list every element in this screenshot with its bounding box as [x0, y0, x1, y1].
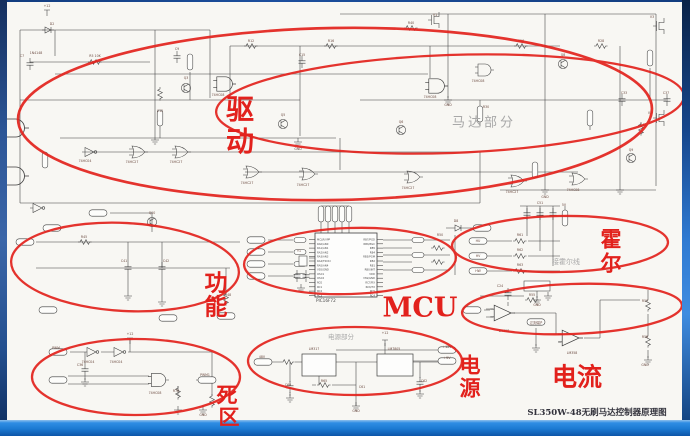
svg-text:RA1/AN1: RA1/AN1: [317, 246, 329, 250]
svg-text:RB1: RB1: [370, 263, 376, 267]
svg-text:74HC08: 74HC08: [424, 95, 437, 99]
svg-text:Q3: Q3: [184, 76, 189, 80]
svg-text:Q10: Q10: [149, 211, 156, 215]
svg-text:PWM1: PWM1: [200, 373, 210, 377]
svg-text:RC6/TX: RC6/TX: [366, 285, 376, 289]
svg-text:GND: GND: [533, 303, 541, 307]
drive-label-char1: 驱: [226, 96, 254, 124]
svg-text:C61: C61: [359, 385, 365, 389]
svg-text:Y1: Y1: [297, 249, 301, 253]
svg-text:VDD: VDD: [369, 272, 375, 276]
svg-text:GND: GND: [199, 413, 207, 417]
function-label-char1: 功: [205, 272, 228, 295]
hall-wiring-caption: 接霍尔线: [552, 257, 580, 267]
svg-text:V3: V3: [650, 15, 654, 19]
svg-text:74HC08: 74HC08: [472, 79, 485, 83]
svg-text:D8: D8: [454, 219, 458, 223]
svg-text:R50: R50: [437, 233, 443, 237]
svg-text:RC0: RC0: [317, 281, 322, 285]
svg-text:C7: C7: [20, 54, 24, 58]
svg-text:OSC1: OSC1: [317, 272, 324, 276]
frame-right-edge: [682, 0, 690, 436]
svg-text:74HC08: 74HC08: [567, 188, 580, 192]
svg-text:GND: GND: [641, 363, 649, 367]
svg-text:1N4148: 1N4148: [30, 51, 43, 55]
svg-text:PWM: PWM: [52, 346, 60, 350]
mcu-label: MCU: [383, 295, 458, 322]
svg-text:+12: +12: [44, 4, 51, 8]
svg-text:LM317: LM317: [309, 347, 320, 351]
svg-text:LM358: LM358: [567, 351, 578, 355]
svg-text:RB5: RB5: [370, 246, 376, 250]
slide: +12D21N4148C7R5 10KC9R12R16R40R26R28V1V3…: [0, 0, 690, 436]
svg-text:R55: R55: [529, 293, 535, 297]
svg-text:R70: R70: [173, 389, 179, 393]
svg-text:R58: R58: [642, 335, 648, 339]
svg-text:R63: R63: [517, 263, 523, 267]
svg-text:R45: R45: [81, 235, 87, 239]
svg-text:RC4: RC4: [370, 293, 375, 297]
svg-text:R57: R57: [642, 299, 648, 303]
svg-text:74HC27: 74HC27: [126, 160, 139, 164]
frame-top-edge: [0, 0, 690, 2]
svg-text:74HC27: 74HC27: [506, 190, 519, 194]
hall-label-char2: 尔: [601, 254, 622, 275]
svg-text:RC7/RX: RC7/RX: [365, 281, 375, 285]
svg-text:+12: +12: [382, 331, 389, 335]
svg-text:OSC2: OSC2: [317, 276, 324, 280]
svg-text:VSS/GND: VSS/GND: [363, 276, 375, 280]
function-label-char2: 能: [205, 296, 228, 319]
svg-text:Q5: Q5: [281, 113, 286, 117]
svg-text:RB7/PGD: RB7/PGD: [363, 238, 375, 242]
svg-text:RB6/PGC: RB6/PGC: [364, 242, 376, 246]
svg-text:R65: R65: [321, 379, 327, 383]
power-label-char2: 源: [460, 379, 481, 400]
svg-text:C36: C36: [77, 363, 83, 367]
svg-text:C51: C51: [537, 201, 543, 205]
svg-text:Q9: Q9: [629, 148, 634, 152]
svg-text:RA3/AN3: RA3/AN3: [317, 255, 329, 259]
svg-text:RB2: RB2: [370, 259, 376, 263]
svg-text:V1: V1: [433, 13, 437, 17]
svg-text:GND: GND: [352, 409, 360, 413]
motor-section-caption: 马达部分: [452, 112, 516, 131]
svg-text:C9: C9: [175, 47, 179, 51]
svg-text:R30: R30: [483, 105, 489, 109]
svg-text:RA5/AN4: RA5/AN4: [317, 263, 329, 267]
svg-text:74HC04: 74HC04: [110, 360, 123, 364]
svg-text:74HC27: 74HC27: [297, 183, 310, 187]
deadzone-label-char1: 死: [217, 386, 238, 407]
power-label-char1: 电: [460, 356, 481, 377]
svg-text:C42: C42: [163, 259, 169, 263]
svg-text:Q6: Q6: [399, 120, 404, 124]
svg-text:C62: C62: [421, 379, 427, 383]
svg-text:C12: C12: [157, 109, 163, 113]
svg-text:+5V: +5V: [444, 356, 452, 360]
svg-text:74HC08: 74HC08: [149, 391, 162, 395]
svg-text:74HC27: 74HC27: [170, 160, 183, 164]
svg-text:LM7805: LM7805: [388, 347, 401, 351]
svg-text:74HC27: 74HC27: [241, 181, 254, 185]
svg-text:HU: HU: [476, 239, 481, 243]
svg-text:R16: R16: [328, 39, 334, 43]
svg-text:74HC27: 74HC27: [402, 186, 415, 190]
svg-text:RC1: RC1: [317, 285, 322, 289]
frame-left-edge: [0, 0, 7, 436]
svg-text:74HC08: 74HC08: [212, 93, 225, 97]
svg-text:+12: +12: [127, 332, 134, 336]
svg-text:GND: GND: [541, 195, 549, 199]
svg-text:RA0/AN0: RA0/AN0: [317, 242, 329, 246]
svg-text:74HC04: 74HC04: [79, 159, 92, 163]
svg-text:C15: C15: [299, 53, 305, 57]
svg-text:C37: C37: [663, 91, 669, 95]
svg-text:R62: R62: [517, 248, 523, 252]
svg-text:C41: C41: [121, 259, 127, 263]
svg-text:R5 10K: R5 10K: [89, 54, 101, 58]
svg-text:RB3/PGM: RB3/PGM: [363, 255, 375, 259]
svg-text:RA2/AN2: RA2/AN2: [317, 250, 329, 254]
svg-text:48V: 48V: [259, 355, 266, 359]
svg-text:RB0/INT: RB0/INT: [365, 268, 376, 272]
svg-text:HW: HW: [475, 269, 481, 273]
svg-text:R61: R61: [517, 233, 523, 237]
power-section-caption: 电源部分: [328, 331, 354, 341]
svg-text:C24: C24: [497, 284, 503, 288]
svg-text:C33: C33: [621, 91, 627, 95]
svg-text:MCLR/VPP: MCLR/VPP: [317, 238, 331, 242]
svg-text:D2: D2: [50, 22, 54, 26]
current-label: 电流: [552, 366, 602, 391]
schematic-title: SL350W-48无刷马达控制器原理图: [527, 406, 666, 418]
svg-text:RB4: RB4: [370, 250, 376, 254]
svg-text:过流保护: 过流保护: [530, 320, 543, 325]
svg-text:GND: GND: [444, 103, 452, 107]
deadzone-label-char2: 区: [219, 408, 240, 429]
drive-label-char2: 动: [226, 128, 254, 156]
svg-text:74HC04: 74HC04: [82, 360, 95, 364]
svg-text:R12: R12: [248, 39, 254, 43]
svg-text:R28: R28: [598, 39, 604, 43]
hall-label-char1: 霍: [601, 230, 622, 251]
svg-text:VSS/GND: VSS/GND: [317, 268, 329, 272]
svg-text:R40: R40: [408, 21, 414, 25]
svg-text:RA4/T0CKI: RA4/T0CKI: [317, 259, 331, 263]
frame-bottom-bar: [0, 420, 690, 436]
mcu-part-number: PIC16F72: [316, 298, 336, 303]
